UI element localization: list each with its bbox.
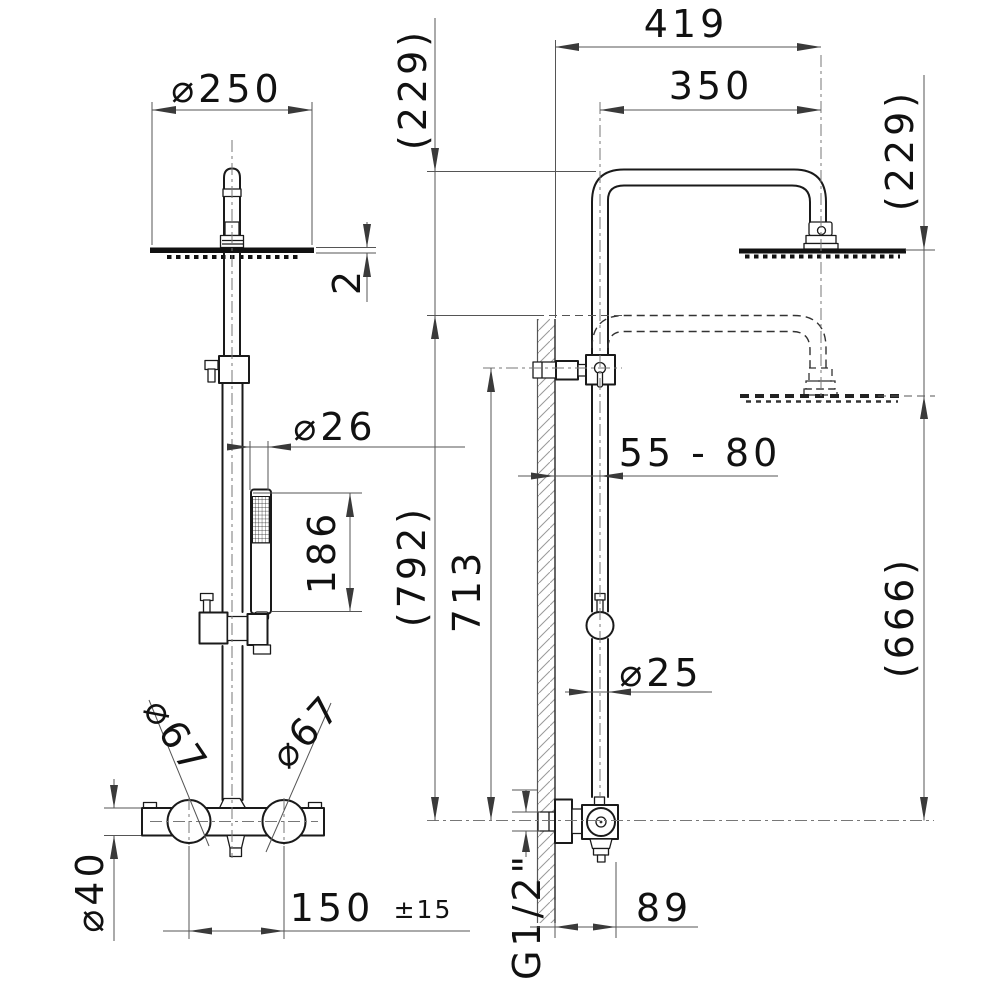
dim-label-tol15: ±15	[394, 895, 453, 924]
dim-label-792: (792)	[390, 505, 434, 627]
dim-label-350: 350	[669, 64, 754, 108]
side-shower-head-plate	[739, 249, 906, 254]
dim-label-dia67-right: ⌀67	[262, 685, 350, 776]
front-diverter-pin-cap	[205, 361, 218, 370]
dim-label-dia67-left: ⌀67	[134, 690, 217, 784]
wall-hatch	[538, 319, 556, 923]
side-arm-inner	[608, 186, 810, 241]
dim-dia25: ⌀25	[565, 651, 712, 696]
dim-label-229-front: (229)	[391, 28, 435, 150]
dim-label-186: 186	[300, 510, 344, 595]
drawing-canvas: ⌀250 2 ⌀26 186 ⌀67	[0, 0, 1000, 999]
front-mixer-outlet-nut	[227, 836, 245, 849]
front-slider-pin	[204, 600, 211, 613]
side-arm-outer	[592, 170, 826, 241]
front-diverter-pin	[208, 369, 215, 382]
dim-label-55-80: 55 - 80	[619, 431, 782, 475]
dim-label-dia25: ⌀25	[619, 651, 702, 695]
dim-label-150: 150	[290, 886, 375, 930]
dim-label-2: 2	[325, 267, 369, 295]
dim-label-dia250: ⌀250	[171, 67, 282, 111]
front-slider-foot	[254, 645, 271, 654]
dim-label-dia40: ⌀40	[68, 849, 112, 932]
dim-label-89: 89	[636, 886, 692, 930]
dim-229-front-and-792: (229) (792)	[390, 18, 624, 821]
side-view	[533, 170, 906, 924]
dim-label-dia26: ⌀26	[293, 405, 376, 449]
dim-229-side-and-666: (229) (666)	[878, 75, 935, 821]
dim-55-80: 55 - 80	[518, 431, 781, 480]
dim-713: 713	[445, 368, 495, 820]
dim-dia26: ⌀26	[227, 405, 465, 490]
dim-label-419: 419	[644, 2, 729, 46]
dim-419: 419	[555, 2, 821, 318]
front-slider-waist	[228, 617, 248, 641]
dim-label-713: 713	[445, 549, 489, 634]
front-hand-shower-face	[253, 497, 270, 544]
dim-150: 150 ±15	[163, 846, 470, 939]
front-slider-block-right	[248, 614, 268, 645]
dim-dia40: ⌀40	[68, 779, 141, 941]
front-diverter-block	[219, 356, 249, 383]
side-phantom-lowered-position	[592, 316, 905, 402]
shower-technical-drawing: ⌀250 2 ⌀26 186 ⌀67	[0, 0, 1000, 999]
dim-label-666: (666)	[878, 556, 922, 678]
dim-label-g12: G1/2"	[505, 852, 549, 980]
front-slider-block-left	[200, 613, 228, 644]
dim-label-229-side: (229)	[878, 89, 922, 211]
dim-350: 350	[600, 64, 821, 114]
dim-thickness2: 2	[316, 222, 376, 302]
